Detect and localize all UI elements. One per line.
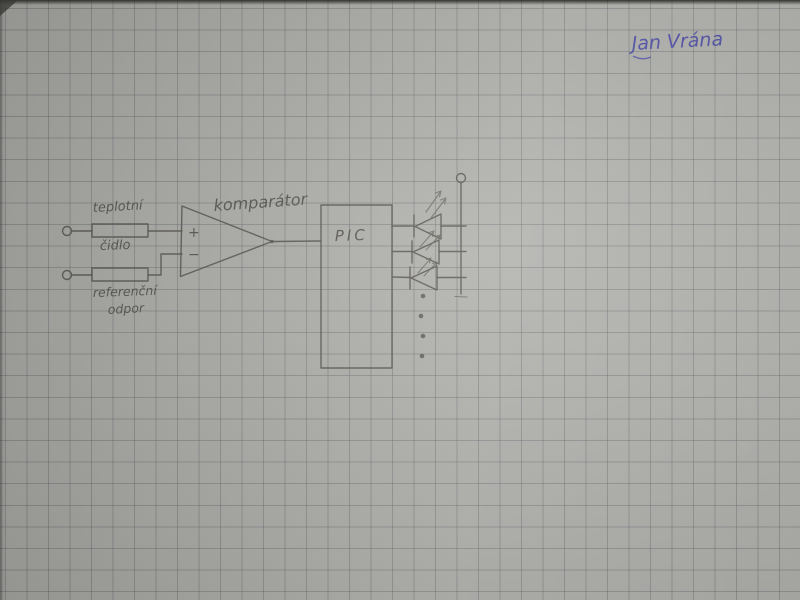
led-array (392, 174, 467, 359)
anode-bus (455, 174, 467, 298)
led-1 (414, 191, 466, 239)
minus-input-label: − (188, 247, 200, 263)
label-pic: PIC (335, 226, 369, 245)
label-komparator: komparátor (213, 189, 309, 215)
signature: Jan Vrána (627, 28, 723, 59)
light-arrow-icon (426, 191, 441, 212)
label-cidlo: čidlo (100, 238, 131, 254)
input-terminal-bottom (63, 271, 93, 280)
temp-sensor-resistor: teplotní čidlo (92, 198, 182, 254)
led-ellipsis-dots (419, 294, 426, 359)
ellipsis-dot (419, 314, 424, 319)
ellipsis-dot (420, 354, 425, 359)
resistor-icon (92, 224, 148, 237)
photo-left-edge (0, 0, 4, 600)
light-arrow-icon (420, 231, 434, 247)
terminal-circle-icon (63, 271, 72, 280)
output-wire (272, 241, 321, 242)
wire (392, 277, 411, 278)
label-teplotni: teplotní (92, 198, 145, 216)
photo-top-edge (0, 0, 800, 5)
label-referencni: referenční (93, 283, 159, 300)
plus-input-label: + (188, 225, 200, 241)
terminal-circle-icon (457, 174, 466, 183)
wire (148, 254, 182, 275)
terminal-circle-icon (63, 227, 72, 236)
opamp-triangle-icon (181, 206, 273, 277)
input-terminal-top (63, 227, 93, 236)
photo-of-squared-paper: teplotní čidlo referenční odpor + − komp… (0, 0, 800, 600)
pic-box: PIC (321, 205, 392, 368)
led-triangle-icon (411, 266, 437, 290)
signature-flourish (633, 56, 651, 59)
led-triangle-icon (413, 240, 439, 264)
led-triangle-icon (415, 214, 441, 239)
ellipsis-dot (421, 334, 426, 339)
reference-resistor: referenční odpor (92, 254, 182, 317)
led-2 (412, 231, 466, 264)
label-odpor: odpor (107, 300, 145, 317)
bus-end-tick (455, 297, 467, 298)
ellipsis-dot (421, 294, 426, 299)
comparator: + − komparátor (181, 189, 322, 276)
signature-text: Jan Vrána (627, 28, 723, 55)
resistor-icon (92, 268, 148, 281)
hand-drawn-schematic: teplotní čidlo referenční odpor + − komp… (0, 0, 800, 600)
